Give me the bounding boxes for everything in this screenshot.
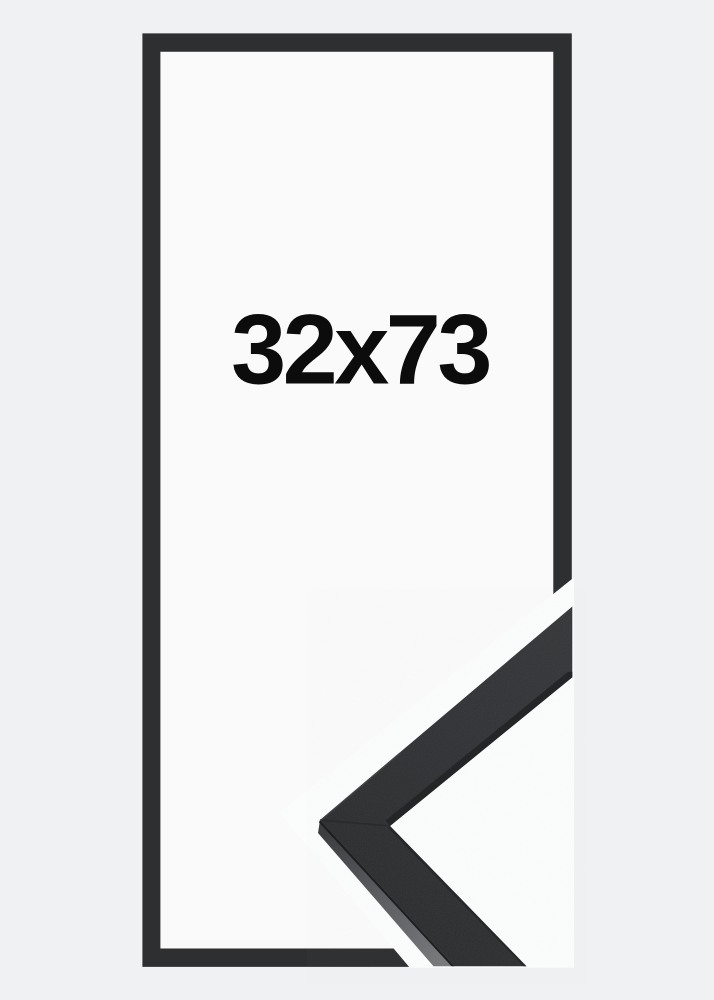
svg-text:32x73: 32x73 [231,294,489,405]
